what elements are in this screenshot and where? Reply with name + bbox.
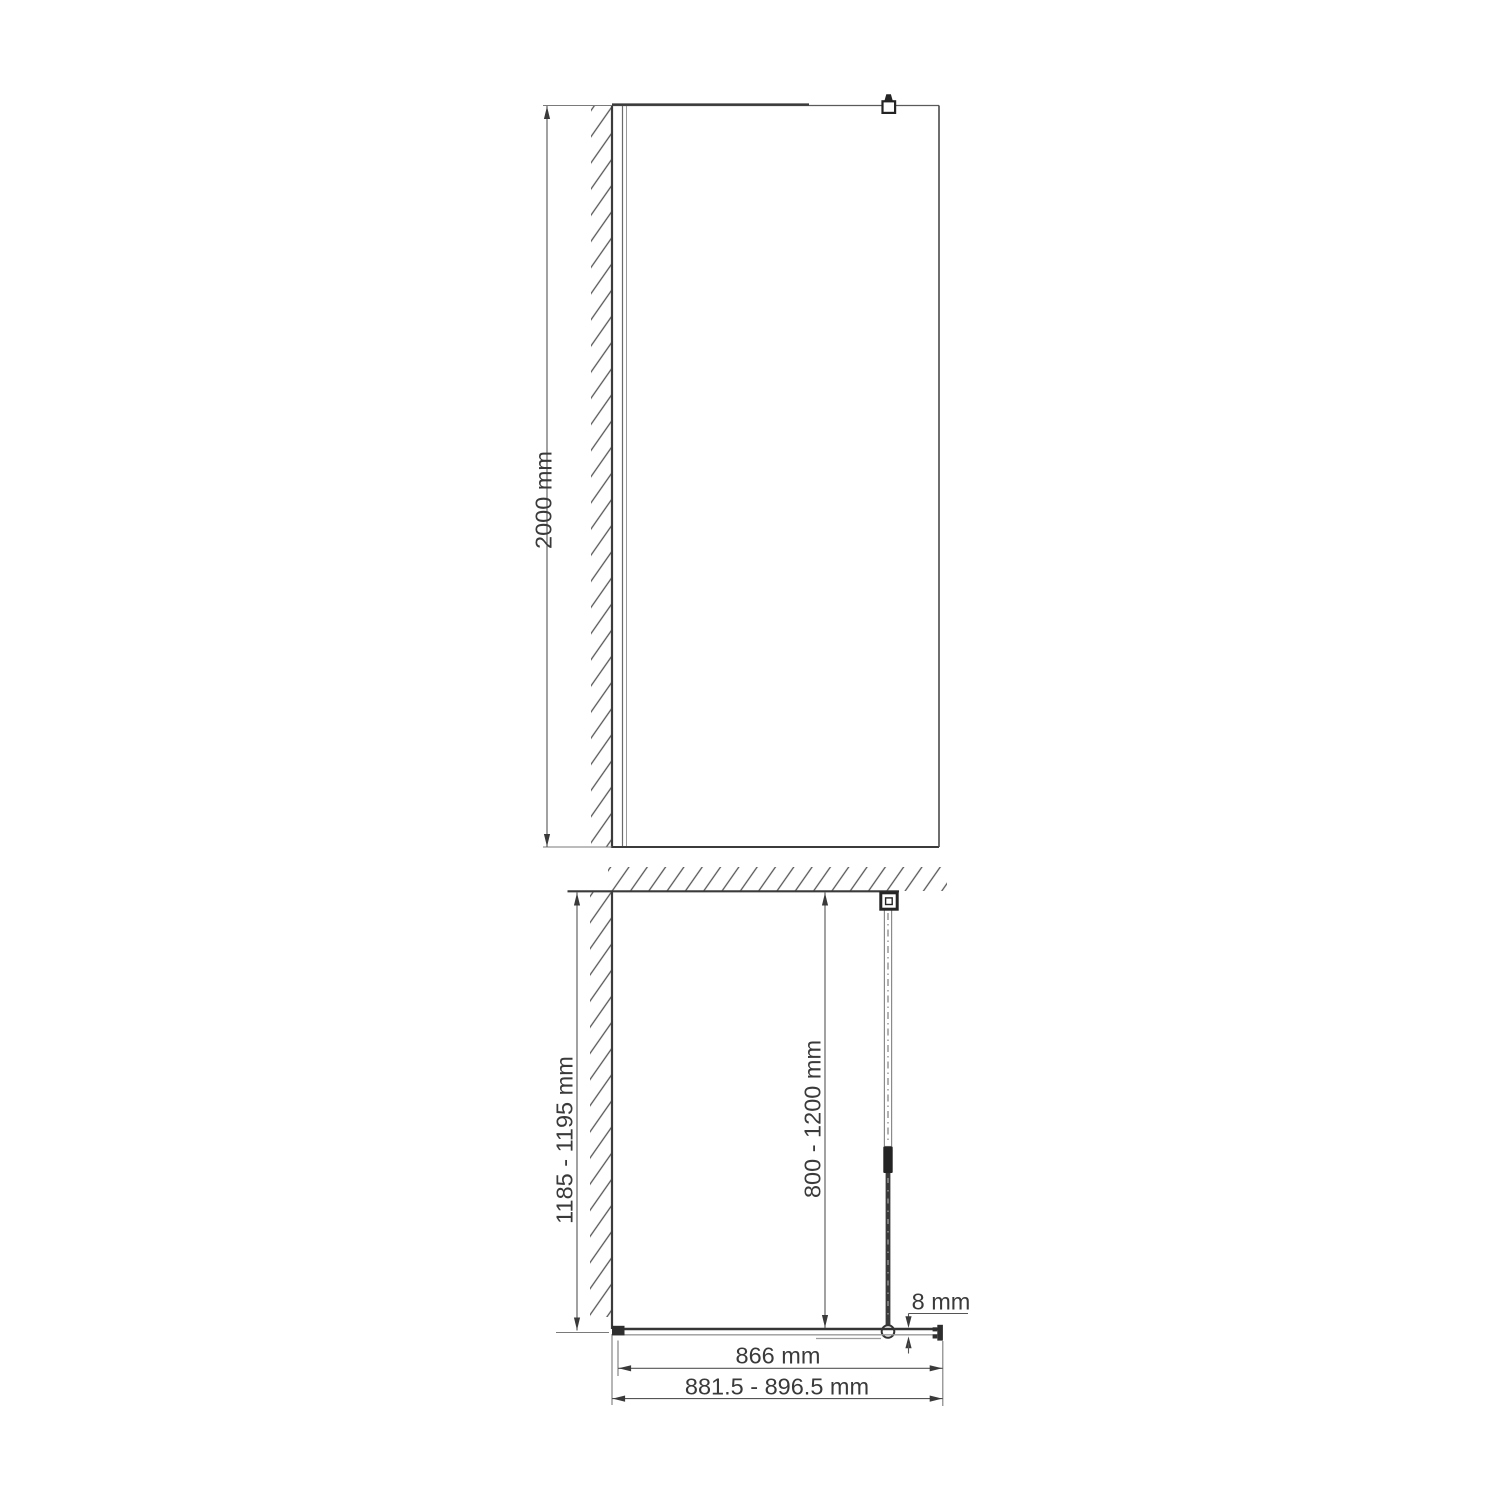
support-bar-outer-tube: [884, 910, 891, 1147]
end-profile-nub-top: [933, 1327, 938, 1331]
dimension-height-2000: 2000 mm: [531, 106, 557, 847]
wall-profile-block: [612, 1326, 625, 1336]
dimension-glass-thickness-8: 8 mm: [905, 1289, 970, 1354]
back-wall-hatch-band: [608, 867, 947, 891]
shower-screen-diagram: 2000 mm 1185 - 1195 mm 800 - 1200 mm: [0, 0, 1500, 1500]
support-bar-glass-clamp-icon: [883, 94, 896, 113]
arrow-left-icon: [619, 1365, 632, 1371]
end-profile-bar: [937, 1325, 943, 1341]
arrow-down-icon: [574, 1318, 580, 1331]
arrow-up-icon: [574, 893, 580, 906]
depth-dimension-label: 1185 - 1195 mm: [552, 1056, 578, 1224]
arrow-up-icon: [544, 107, 550, 120]
dimension-support-bar-800-1200: 800 - 1200 mm: [800, 893, 882, 1339]
wall-hatch-band: [591, 106, 612, 847]
glass-width-label: 866 mm: [736, 1343, 821, 1369]
glass-end-profile: [933, 1325, 943, 1341]
glass-thickness-label: 8 mm: [912, 1289, 971, 1315]
top-plan-view: 1185 - 1195 mm 800 - 1200 mm: [552, 867, 971, 1406]
support-bar-clamp: [883, 1147, 892, 1174]
end-profile-nub-bottom: [933, 1334, 938, 1338]
telescopic-support-bar: [881, 893, 897, 1338]
arrow-down-icon: [905, 1316, 911, 1328]
height-dimension-label: 2000 mm: [531, 451, 557, 549]
support-bar-dimension-label: 800 - 1200 mm: [800, 1040, 826, 1198]
clamp-body: [883, 101, 896, 113]
arrow-right-icon: [930, 1365, 943, 1371]
side-wall-hatch-band: [590, 892, 612, 1317]
dimension-overall-width-881-896: 881.5 - 896.5 mm: [612, 1374, 943, 1402]
support-bar-glass-connector: [882, 1325, 895, 1338]
arrow-left-icon: [613, 1396, 626, 1402]
front-elevation-view: 2000 mm: [531, 94, 940, 848]
technical-drawing-page: 2000 mm 1185 - 1195 mm 800 - 1200 mm: [0, 0, 1500, 1500]
arrow-right-icon: [930, 1396, 943, 1402]
wall-bracket-screw: [886, 898, 893, 905]
arrow-down-icon: [822, 1315, 828, 1328]
overall-width-label: 881.5 - 896.5 mm: [685, 1374, 869, 1400]
arrow-down-icon: [544, 834, 550, 847]
arrow-up-icon: [822, 893, 828, 906]
